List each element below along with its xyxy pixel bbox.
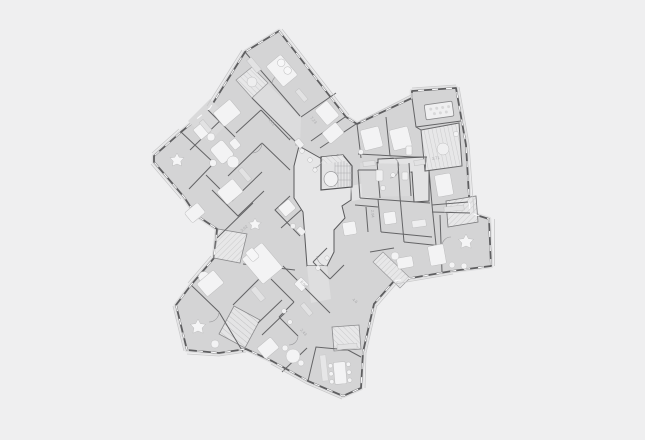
svg-text:2.94: 2.94 <box>370 210 376 219</box>
